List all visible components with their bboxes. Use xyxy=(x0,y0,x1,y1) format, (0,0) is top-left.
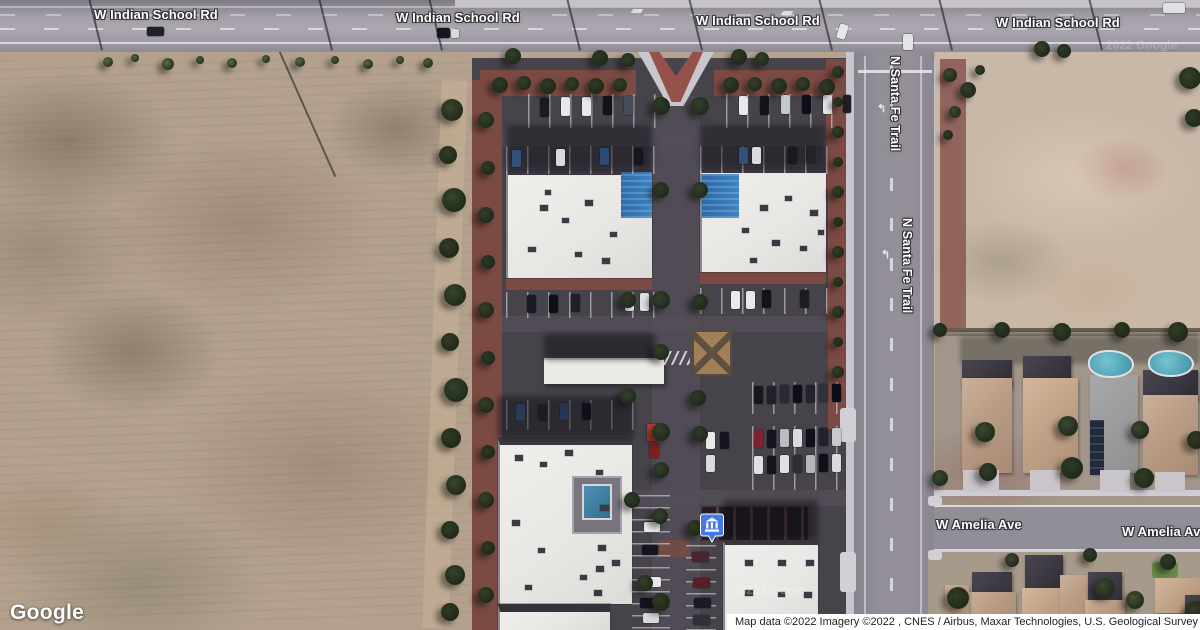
car xyxy=(527,295,536,313)
tree xyxy=(652,423,670,441)
tree xyxy=(1057,44,1071,58)
tree xyxy=(1053,323,1071,341)
car xyxy=(760,96,769,115)
tree xyxy=(423,58,433,68)
car xyxy=(767,386,776,404)
tree xyxy=(833,157,843,167)
tree xyxy=(227,58,237,68)
tree xyxy=(692,182,708,198)
tree xyxy=(748,77,762,91)
hvac-unit xyxy=(785,196,792,201)
car xyxy=(819,428,828,446)
tree xyxy=(979,463,997,481)
car xyxy=(754,456,763,474)
tree xyxy=(624,492,640,508)
turn-arrow-marking: ↰ xyxy=(881,248,890,261)
car xyxy=(571,294,580,312)
tree xyxy=(439,238,459,258)
tree xyxy=(832,366,844,378)
car xyxy=(540,98,549,117)
car xyxy=(754,386,763,404)
tree xyxy=(652,508,668,524)
tree xyxy=(943,68,957,82)
car xyxy=(649,444,659,458)
tree xyxy=(652,97,670,115)
hvac-unit xyxy=(515,455,523,461)
hvac-unit xyxy=(565,450,573,456)
tree xyxy=(162,58,174,70)
car xyxy=(147,27,164,36)
tree xyxy=(1134,468,1154,488)
tree xyxy=(653,344,669,360)
tree xyxy=(1185,109,1200,127)
tree xyxy=(994,322,1010,338)
tree xyxy=(960,82,976,98)
car xyxy=(561,97,570,116)
hvac-unit xyxy=(512,520,520,526)
tree xyxy=(653,462,669,478)
tree xyxy=(492,77,508,93)
tree xyxy=(833,97,843,107)
car xyxy=(582,403,591,420)
hvac-unit xyxy=(742,228,749,233)
tree xyxy=(731,49,747,65)
car xyxy=(819,384,828,402)
car xyxy=(832,454,841,472)
tree xyxy=(478,112,494,128)
field-furrows xyxy=(0,60,470,620)
tree xyxy=(832,126,844,138)
car xyxy=(739,96,748,115)
tree xyxy=(331,56,339,64)
car xyxy=(793,429,802,447)
tree xyxy=(478,492,494,508)
car xyxy=(780,455,789,473)
imagery-watermark: 2022 Google xyxy=(1106,38,1177,52)
tree xyxy=(1095,578,1115,598)
tree xyxy=(565,77,579,91)
car xyxy=(634,148,643,165)
car xyxy=(694,598,711,608)
hvac-unit xyxy=(818,230,824,235)
car xyxy=(642,545,658,555)
car xyxy=(706,455,715,472)
road-label-santa-fe: N Santa Fe Trail xyxy=(888,56,902,151)
tree xyxy=(517,76,531,90)
gazebo-roof xyxy=(692,330,732,376)
tree xyxy=(441,99,463,121)
hvac-unit xyxy=(760,205,768,211)
tree xyxy=(692,294,708,310)
tree xyxy=(446,475,466,495)
tree xyxy=(613,78,627,92)
hvac-unit xyxy=(610,232,617,237)
tree xyxy=(832,246,844,258)
tree xyxy=(652,593,670,611)
tree xyxy=(103,57,113,67)
car xyxy=(556,149,565,166)
tree xyxy=(478,207,494,223)
car xyxy=(752,147,761,164)
tree xyxy=(620,388,636,404)
car xyxy=(693,578,710,588)
tree xyxy=(444,284,466,306)
car xyxy=(643,613,659,623)
building-blue-roof-section xyxy=(621,172,652,218)
curb-ramp xyxy=(928,550,942,560)
hvac-unit xyxy=(804,592,812,598)
tree xyxy=(1179,67,1200,89)
road-edge-line xyxy=(920,56,922,628)
swimming-pool xyxy=(1088,350,1134,378)
road-label-santa-fe: N Santa Fe Trail xyxy=(900,218,914,313)
car xyxy=(538,404,547,421)
tree xyxy=(478,397,494,413)
bank-icon xyxy=(700,513,724,543)
car xyxy=(780,429,789,447)
curb-ramp xyxy=(928,496,942,506)
building-shadow xyxy=(544,334,656,360)
tree xyxy=(540,78,556,94)
landscape-strip xyxy=(700,272,826,284)
tree xyxy=(771,78,787,94)
road-label-indian-school: W Indian School Rd xyxy=(696,13,820,28)
tree xyxy=(692,426,708,442)
house-roof xyxy=(1030,470,1060,492)
tree xyxy=(833,337,843,347)
poi-marker[interactable] xyxy=(700,513,724,543)
swimming-pool xyxy=(1148,350,1194,377)
turn-arrow-marking: ↰ xyxy=(877,102,886,115)
car xyxy=(692,552,709,562)
tree xyxy=(1058,416,1078,436)
car xyxy=(754,430,763,448)
car xyxy=(767,456,776,474)
car xyxy=(832,428,841,446)
road-label-amelia: W Amelia Ave xyxy=(936,517,1022,532)
road-label-indian-school: W Indian School Rd xyxy=(94,7,218,22)
hvac-unit xyxy=(538,548,545,553)
tree xyxy=(819,79,835,95)
hvac-unit xyxy=(810,210,818,216)
hvac-unit xyxy=(598,545,606,551)
car xyxy=(819,454,828,472)
car xyxy=(806,385,815,403)
tree xyxy=(1114,322,1130,338)
car xyxy=(549,295,558,313)
tree xyxy=(620,292,636,308)
attribution-bar: Map data ©2022 Imagery ©2022 , CNES / Ai… xyxy=(727,614,1200,630)
car xyxy=(903,34,913,50)
tree xyxy=(975,422,995,442)
hvac-unit xyxy=(540,205,548,211)
road-edge-line xyxy=(864,56,866,628)
tree xyxy=(481,445,495,459)
tree xyxy=(690,390,706,406)
car xyxy=(437,28,450,38)
tree xyxy=(947,587,969,609)
hvac-unit xyxy=(806,560,814,566)
tree xyxy=(505,48,521,64)
building-roof-edge xyxy=(498,604,610,630)
car xyxy=(693,615,710,625)
hvac-unit xyxy=(585,200,593,206)
hvac-unit xyxy=(602,258,610,264)
google-logo[interactable]: Google xyxy=(10,601,84,625)
tree xyxy=(445,565,465,585)
tree xyxy=(949,106,961,118)
car xyxy=(780,385,789,403)
road-edge-line xyxy=(0,42,1200,44)
road-label-amelia: W Amelia Ave xyxy=(1122,524,1200,539)
car xyxy=(739,147,748,164)
hvac-unit xyxy=(750,258,757,263)
courtyard-pool xyxy=(582,484,612,520)
hvac-unit xyxy=(600,505,609,511)
tree xyxy=(295,57,305,67)
building-shadow xyxy=(723,500,818,540)
tree xyxy=(832,186,844,198)
tree xyxy=(1005,553,1019,567)
hvac-unit xyxy=(528,247,536,252)
car xyxy=(793,385,802,403)
car xyxy=(603,96,612,115)
tree xyxy=(441,333,459,351)
hvac-unit xyxy=(575,252,582,257)
tree xyxy=(441,428,461,448)
car xyxy=(832,384,841,402)
tree xyxy=(975,65,985,75)
hvac-unit xyxy=(596,470,603,475)
hvac-unit xyxy=(545,190,551,195)
tree xyxy=(444,378,468,402)
tree xyxy=(481,351,495,365)
tree xyxy=(691,97,709,115)
car xyxy=(843,95,851,113)
tree xyxy=(442,188,466,212)
tree xyxy=(652,291,670,309)
tree xyxy=(1034,41,1050,57)
tree xyxy=(262,55,270,63)
car xyxy=(512,150,521,167)
tree xyxy=(478,302,494,318)
tree xyxy=(833,217,843,227)
tree xyxy=(796,77,810,91)
tree xyxy=(592,50,608,66)
road-label-indian-school: W Indian School Rd xyxy=(396,10,520,25)
tree xyxy=(932,470,948,486)
tree xyxy=(478,587,494,603)
car xyxy=(800,290,809,308)
tree xyxy=(621,53,635,67)
car xyxy=(731,291,740,309)
tree xyxy=(653,182,669,198)
tree xyxy=(755,52,769,66)
car xyxy=(806,429,815,447)
hvac-unit xyxy=(562,218,569,223)
hvac-unit xyxy=(594,590,602,596)
tree xyxy=(588,78,604,94)
car xyxy=(767,430,776,448)
car xyxy=(720,432,729,449)
hvac-unit xyxy=(778,560,786,566)
car xyxy=(582,97,591,116)
tree xyxy=(439,146,457,164)
car xyxy=(788,147,797,164)
tree xyxy=(481,161,495,175)
tree xyxy=(1061,457,1083,479)
tree xyxy=(832,66,844,78)
tree xyxy=(396,56,404,64)
canopy-structure xyxy=(544,358,664,384)
car xyxy=(793,455,802,473)
car xyxy=(624,96,633,115)
tree xyxy=(1160,554,1176,570)
car xyxy=(802,95,811,114)
tree xyxy=(441,521,459,539)
imagery-watermark: 2022 Google xyxy=(733,583,804,597)
hvac-unit xyxy=(800,246,807,251)
car xyxy=(600,148,609,165)
car xyxy=(806,455,815,473)
road-label-indian-school: W Indian School Rd xyxy=(996,15,1120,30)
hvac-unit xyxy=(745,560,753,566)
tree xyxy=(441,603,459,621)
car xyxy=(1163,3,1185,13)
car xyxy=(640,293,649,311)
house-roof xyxy=(1155,472,1185,492)
tree xyxy=(363,59,373,69)
tree xyxy=(1131,421,1149,439)
drive-aisle xyxy=(472,316,856,332)
hvac-unit xyxy=(596,566,604,572)
car xyxy=(451,29,459,38)
sidewalk xyxy=(846,52,854,630)
hvac-unit xyxy=(772,240,780,246)
driveway-apron xyxy=(840,552,856,592)
tree xyxy=(131,54,139,62)
hvac-unit xyxy=(580,575,587,580)
tree xyxy=(1083,548,1097,562)
car xyxy=(823,95,832,114)
hvac-unit xyxy=(525,585,532,590)
tree xyxy=(723,77,739,93)
house-roof xyxy=(1090,420,1104,475)
tree xyxy=(943,130,953,140)
hvac-unit xyxy=(612,560,620,566)
car xyxy=(806,146,815,163)
landscape-strip xyxy=(506,278,652,290)
tree xyxy=(196,56,204,64)
building-blue-roof-section xyxy=(702,174,739,218)
tree xyxy=(481,541,495,555)
car xyxy=(781,95,790,114)
car xyxy=(762,290,771,308)
tree xyxy=(933,323,947,337)
car xyxy=(746,291,755,309)
tree xyxy=(832,306,844,318)
granite-landscaping xyxy=(940,59,966,331)
hvac-unit xyxy=(540,462,547,467)
tree xyxy=(637,575,653,591)
car xyxy=(516,404,525,421)
tree xyxy=(1168,322,1188,342)
car xyxy=(560,403,569,420)
tree xyxy=(1187,431,1200,449)
tree xyxy=(833,277,843,287)
building-shadow xyxy=(506,126,652,170)
tree xyxy=(1126,591,1144,609)
map-canvas[interactable]: ↰ ↰ W Indian School Rd W Indian School R… xyxy=(0,0,1200,630)
tree xyxy=(481,255,495,269)
house-roof xyxy=(1100,470,1130,492)
